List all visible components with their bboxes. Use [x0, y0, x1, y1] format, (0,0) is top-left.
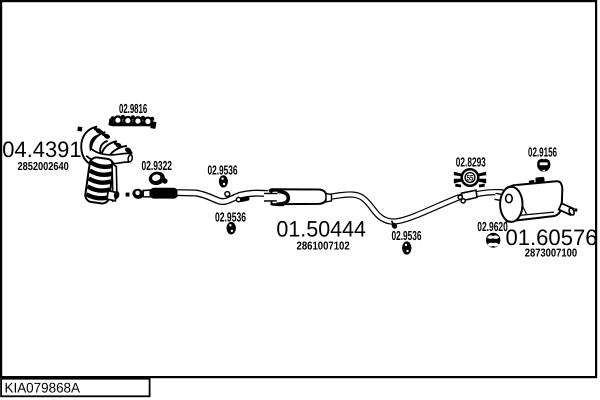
svg-text:02.9620: 02.9620	[477, 219, 508, 234]
svg-text:KIA079868A: KIA079868A	[5, 380, 81, 396]
svg-text:02.9536: 02.9536	[392, 228, 422, 243]
svg-text:02.9536: 02.9536	[215, 209, 246, 224]
svg-text:02.8293: 02.8293	[456, 155, 486, 170]
svg-text:04.4391: 04.4391	[2, 137, 81, 162]
svg-text:2861007102: 2861007102	[297, 240, 350, 252]
svg-text:2873007100: 2873007100	[525, 248, 578, 260]
svg-text:01.50444: 01.50444	[276, 216, 366, 241]
svg-text:02.9156: 02.9156	[528, 144, 557, 159]
svg-text:55: 55	[467, 173, 474, 182]
svg-text:02.9816: 02.9816	[119, 101, 147, 116]
svg-text:01.60576: 01.60576	[506, 225, 598, 250]
svg-text:02.9536: 02.9536	[208, 162, 238, 177]
svg-text:02.9322: 02.9322	[142, 158, 173, 173]
svg-text:2852002640: 2852002640	[18, 161, 69, 173]
